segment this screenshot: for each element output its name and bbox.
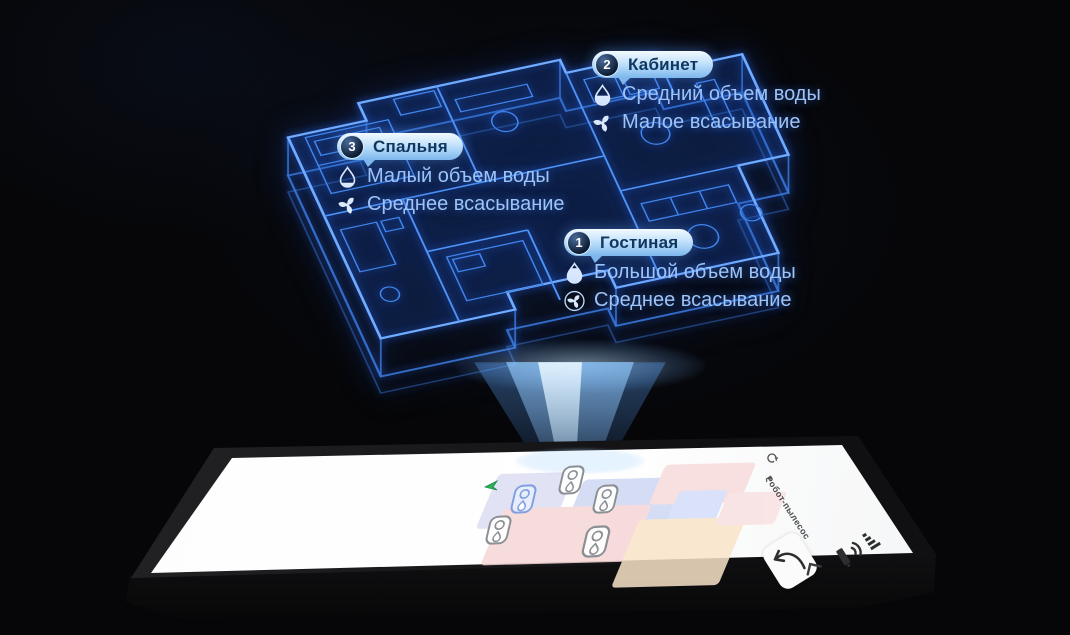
- robot-position-icon: [484, 479, 500, 491]
- wifi-icon: [850, 542, 863, 557]
- hologram-base-glow: [455, 340, 705, 392]
- room-name: Спальня: [373, 137, 448, 157]
- room-number-badge: 2: [595, 53, 619, 77]
- room-bubble: 1 Гостиная: [564, 229, 693, 256]
- room-name: Кабинет: [628, 55, 698, 75]
- scene: Робот-пылесос 2 Кабинет Средний объем во…: [0, 0, 1070, 635]
- water-setting-text: Малый объем воды: [367, 165, 550, 188]
- room-name: Гостиная: [600, 233, 678, 253]
- room-bubble: 2 Кабинет: [592, 51, 713, 78]
- curved-arrow-icon: [768, 539, 811, 584]
- suction-setting-text: Среднее всасывание: [367, 193, 565, 216]
- water-setting-text: Средний объем воды: [622, 83, 821, 106]
- suction-setting-text: Малое всасывание: [622, 111, 800, 134]
- water-drop-icon: [592, 84, 613, 106]
- room-bubble: 3 Спальня: [337, 133, 463, 160]
- fan-icon: [592, 112, 613, 134]
- water-drop-icon: [337, 166, 358, 188]
- room-number-badge: 1: [567, 231, 591, 255]
- fan-in-circle-icon: [564, 290, 585, 312]
- suction-setting-row: Среднее всасывание: [337, 193, 565, 216]
- suction-setting-text: Среднее всасывание: [594, 289, 792, 312]
- water-drop-icon: [564, 262, 585, 284]
- suction-setting-row: Среднее всасывание: [564, 289, 796, 312]
- water-setting-row: Малый объем воды: [337, 165, 565, 188]
- suction-setting-row: Малое всасывание: [592, 111, 821, 134]
- water-setting-row: Большой объем воды: [564, 261, 796, 284]
- room-label-spalnya: 3 Спальня Малый объем воды Среднее всасы…: [337, 133, 565, 216]
- water-setting-row: Средний объем воды: [592, 83, 821, 106]
- room-number-badge: 3: [340, 135, 364, 159]
- room-label-gostinaya: 1 Гостиная Большой объем воды Среднее вс…: [564, 229, 796, 312]
- room-label-kabinet: 2 Кабинет Средний объем воды Малое всасы…: [592, 51, 821, 134]
- fan-icon: [337, 194, 358, 216]
- water-setting-text: Большой объем воды: [594, 261, 796, 284]
- refresh-icon: [766, 452, 778, 464]
